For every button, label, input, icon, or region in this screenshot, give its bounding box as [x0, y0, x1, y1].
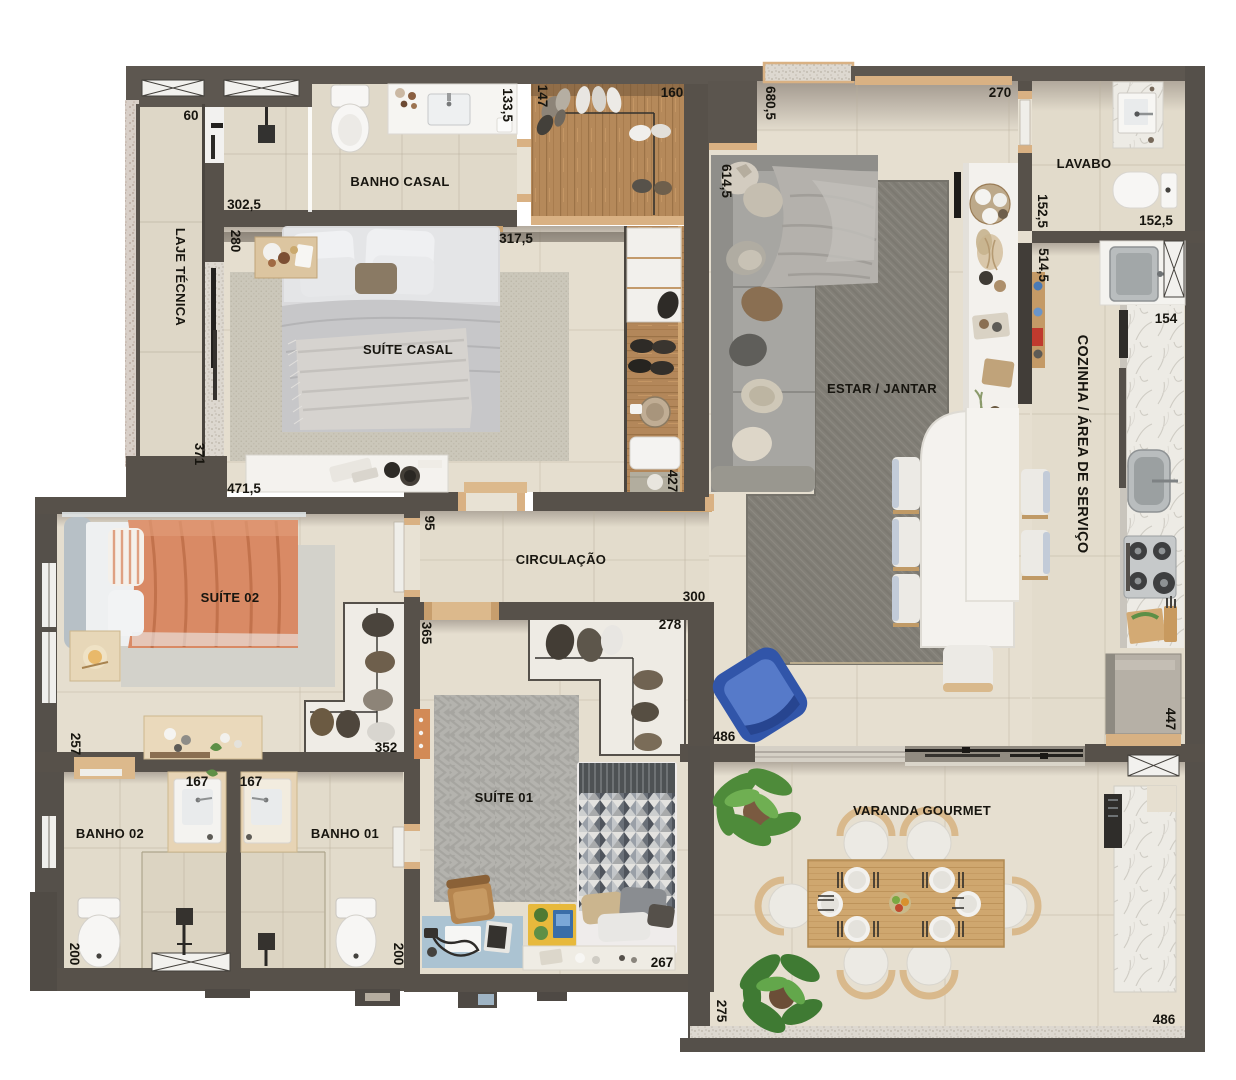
svg-text:200: 200 — [67, 943, 82, 966]
svg-text:167: 167 — [186, 774, 209, 789]
svg-text:371: 371 — [192, 443, 207, 466]
svg-text:COZINHA / ÁREA DE SERVIÇO: COZINHA / ÁREA DE SERVIÇO — [1074, 335, 1091, 554]
svg-text:ESTAR / JANTAR: ESTAR / JANTAR — [827, 381, 937, 396]
svg-text:280: 280 — [228, 230, 243, 253]
svg-text:270: 270 — [989, 85, 1012, 100]
svg-text:152,5: 152,5 — [1035, 194, 1050, 228]
svg-text:BANHO 02: BANHO 02 — [76, 826, 144, 841]
svg-text:SUÍTE 02: SUÍTE 02 — [201, 590, 260, 605]
svg-text:147: 147 — [535, 85, 550, 108]
svg-text:160: 160 — [661, 85, 684, 100]
svg-text:486: 486 — [713, 729, 736, 744]
svg-text:SUÍTE CASAL: SUÍTE CASAL — [363, 342, 453, 357]
svg-text:167: 167 — [240, 774, 263, 789]
svg-text:275: 275 — [714, 1000, 729, 1023]
svg-text:152,5: 152,5 — [1139, 213, 1173, 228]
svg-text:267: 267 — [651, 955, 674, 970]
svg-text:VARANDA GOURMET: VARANDA GOURMET — [853, 803, 991, 818]
svg-text:680,5: 680,5 — [763, 86, 778, 120]
svg-text:200: 200 — [391, 943, 406, 966]
svg-text:60: 60 — [183, 108, 198, 123]
svg-text:365: 365 — [419, 622, 434, 645]
svg-text:257: 257 — [68, 733, 83, 756]
svg-text:LAJE TÉCNICA: LAJE TÉCNICA — [173, 228, 188, 327]
svg-text:154: 154 — [1155, 311, 1178, 326]
svg-text:486: 486 — [1153, 1012, 1176, 1027]
svg-text:95: 95 — [422, 515, 437, 531]
svg-text:BANHO 01: BANHO 01 — [311, 826, 379, 841]
svg-text:447: 447 — [1163, 708, 1178, 731]
svg-text:300: 300 — [683, 589, 706, 604]
svg-text:SUÍTE 01: SUÍTE 01 — [475, 790, 534, 805]
svg-text:352: 352 — [375, 740, 398, 755]
svg-text:LAVABO: LAVABO — [1057, 156, 1112, 171]
svg-text:514,5: 514,5 — [1036, 248, 1051, 282]
svg-text:427: 427 — [665, 470, 680, 493]
svg-text:302,5: 302,5 — [227, 197, 261, 212]
svg-text:471,5: 471,5 — [227, 481, 261, 496]
svg-text:317,5: 317,5 — [499, 231, 533, 246]
svg-text:278: 278 — [659, 617, 682, 632]
svg-text:133,5: 133,5 — [500, 88, 515, 122]
svg-text:614,5: 614,5 — [719, 164, 734, 198]
svg-text:CIRCULAÇÃO: CIRCULAÇÃO — [516, 552, 606, 567]
svg-text:BANHO CASAL: BANHO CASAL — [350, 174, 449, 189]
